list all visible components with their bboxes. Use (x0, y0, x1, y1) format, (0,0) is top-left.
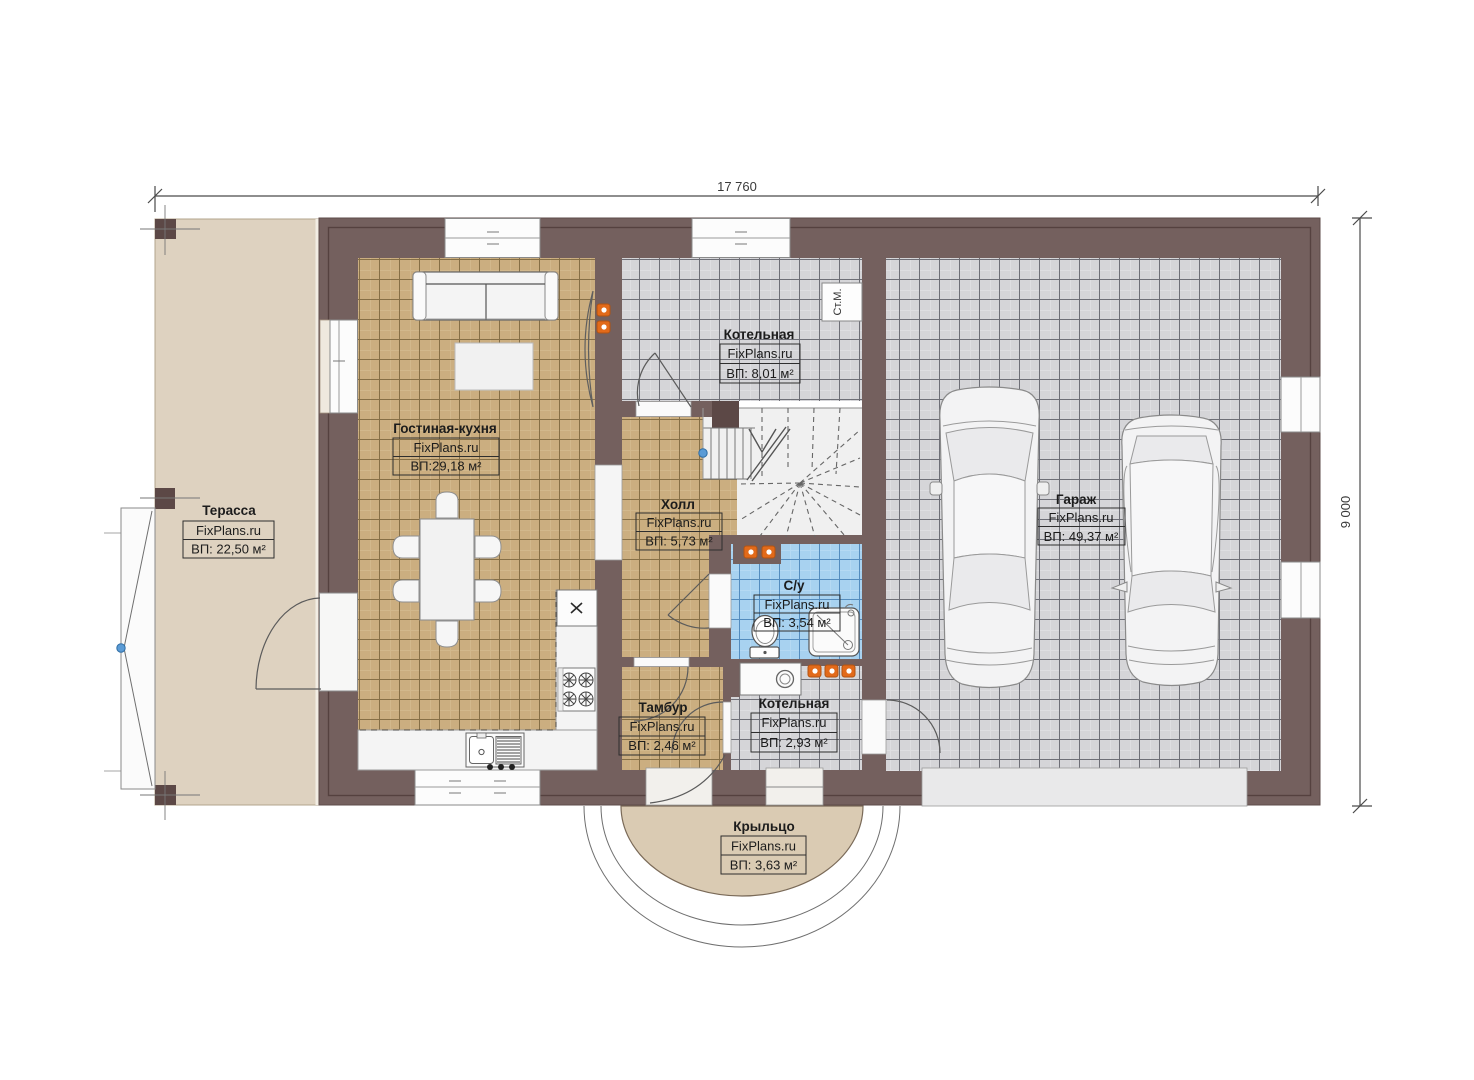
svg-text:Котельная: Котельная (759, 696, 830, 711)
svg-text:ВП: 2,93 м²: ВП: 2,93 м² (760, 735, 828, 750)
svg-text:FixPlans.ru: FixPlans.ru (764, 597, 829, 612)
svg-text:ВП: 3,63 м²: ВП: 3,63 м² (730, 858, 798, 873)
svg-text:ВП: 3,54 м²: ВП: 3,54 м² (763, 615, 831, 630)
svg-text:Тамбур: Тамбур (639, 700, 688, 715)
svg-text:FixPlans.ru: FixPlans.ru (761, 715, 826, 730)
svg-text:ВП: 22,50 м²: ВП: 22,50 м² (191, 542, 266, 557)
svg-text:FixPlans.ru: FixPlans.ru (629, 719, 694, 734)
svg-text:С/у: С/у (783, 578, 805, 593)
svg-text:9 000: 9 000 (1338, 496, 1353, 529)
svg-text:ВП: 2,46 м²: ВП: 2,46 м² (628, 738, 696, 753)
svg-text:17 760: 17 760 (717, 179, 757, 194)
svg-text:FixPlans.ru: FixPlans.ru (413, 440, 478, 455)
svg-text:Котельная: Котельная (724, 327, 795, 342)
svg-text:Холл: Холл (661, 497, 695, 512)
svg-text:FixPlans.ru: FixPlans.ru (731, 839, 796, 854)
svg-text:Гостиная-кухня: Гостиная-кухня (393, 421, 496, 436)
svg-text:FixPlans.ru: FixPlans.ru (1048, 510, 1113, 525)
svg-text:ВП: 5,73 м²: ВП: 5,73 м² (645, 534, 713, 549)
svg-text:Ст.М.: Ст.М. (832, 288, 844, 315)
svg-text:ВП: 49,37 м²: ВП: 49,37 м² (1044, 529, 1119, 544)
svg-text:FixPlans.ru: FixPlans.ru (196, 523, 261, 538)
svg-text:FixPlans.ru: FixPlans.ru (727, 346, 792, 361)
svg-text:ВП: 8,01 м²: ВП: 8,01 м² (726, 366, 794, 381)
svg-text:ВП:29,18 м²: ВП:29,18 м² (410, 459, 482, 474)
svg-text:Гараж: Гараж (1056, 492, 1097, 507)
svg-text:Крыльцо: Крыльцо (733, 819, 794, 834)
svg-text:Терасса: Терасса (202, 503, 256, 518)
svg-text:FixPlans.ru: FixPlans.ru (646, 515, 711, 530)
